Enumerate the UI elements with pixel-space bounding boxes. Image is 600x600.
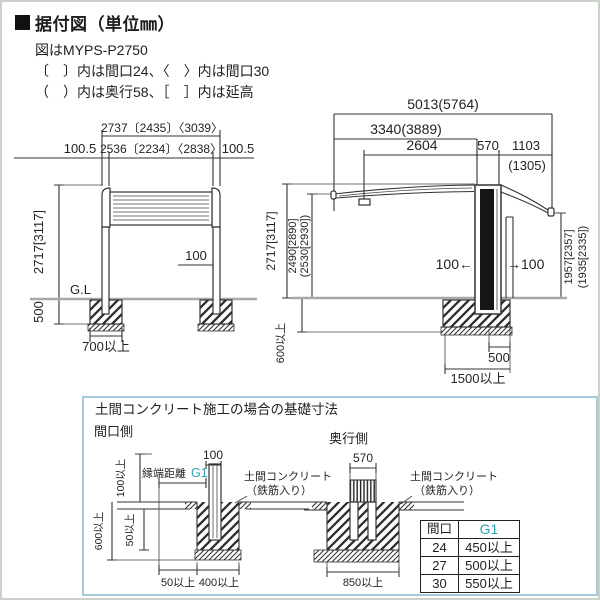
g1-table-row: 27 500以上	[421, 557, 520, 575]
front-roof	[102, 188, 220, 227]
front-dim-overhang-left: 100.5	[64, 141, 97, 156]
foundation-box-border	[82, 396, 598, 596]
g1-table-cell: 450以上	[459, 539, 520, 557]
side-dim-front-clearance-alt: (2530[2930])	[299, 215, 311, 277]
side-dim-front-clearance: 2490[2890]	[287, 218, 299, 273]
side-dim-total-depth: 5013(5764)	[407, 96, 479, 112]
front-dim-overhang-right: 100.5	[222, 141, 255, 156]
g1-table-row: 30 550以上	[421, 575, 520, 593]
side-dim-post-shift-left: 100←	[436, 256, 473, 272]
side-view: 5013(5764) 3340(3889) 2604 570 1103 (130…	[264, 96, 589, 386]
side-dim-rear-clearance-alt: (1935[2335])	[577, 226, 589, 288]
g1-table-cell: 27	[421, 557, 459, 575]
g1-table-cell: 24	[421, 539, 459, 557]
front-dim-post-inset: 100	[185, 248, 207, 263]
side-dim-post-shift-right: →100	[507, 256, 545, 272]
front-width-dimensions	[14, 130, 254, 186]
g1-table-cell: 30	[421, 575, 459, 593]
front-view: 2737〔2435〕〈3039〉 100.5 2536〔2234〕〈2838〉 …	[14, 121, 257, 354]
front-foundations	[88, 300, 234, 331]
g1-table-header-maguchi: 間口	[421, 521, 459, 539]
g1-table-header-row: 間口 G1	[421, 521, 520, 539]
side-dim-footing-width: 1500以上	[451, 371, 506, 386]
side-dim-height: 2717[3117]	[264, 211, 278, 270]
front-dim-width-outer: 2737〔2435〕〈3039〉	[101, 121, 223, 135]
installation-diagram-page: 据付図（単位㎜） 図はMYPS-P2750 〔 〕内は間口24、〈 〉内は間口3…	[0, 0, 600, 600]
front-dim-height: 2717[3117]	[31, 210, 46, 274]
side-dim-front-arm: 2604	[406, 137, 437, 153]
side-dim-rear-overhang: 1103	[512, 138, 540, 153]
front-dim-width-inner: 2536〔2234〕〈2838〉	[100, 142, 222, 156]
g1-table: 間口 G1 24 450以上 27 500以上 30 550以上	[420, 520, 520, 593]
side-post	[475, 185, 501, 314]
side-dim-post-depth: 570	[477, 138, 499, 153]
side-dim-rear-clearance: 1957[2357]	[563, 229, 575, 284]
g1-table-cell: 500以上	[459, 557, 520, 575]
side-dim-footing-500: 500	[488, 350, 510, 365]
side-dim-rear-overhang-alt: (1305)	[508, 158, 546, 173]
front-dim-embed: 500	[31, 301, 46, 323]
side-dim-front-section: 3340(3889)	[370, 121, 442, 137]
front-dim-footing-width: 700以上	[82, 339, 130, 354]
front-ground-label: G.L	[70, 282, 91, 297]
g1-table-row: 24 450以上	[421, 539, 520, 557]
g1-table-cell: 550以上	[459, 575, 520, 593]
g1-table-header-g1: G1	[459, 521, 520, 539]
side-dim-embed: 600以上	[274, 323, 287, 363]
